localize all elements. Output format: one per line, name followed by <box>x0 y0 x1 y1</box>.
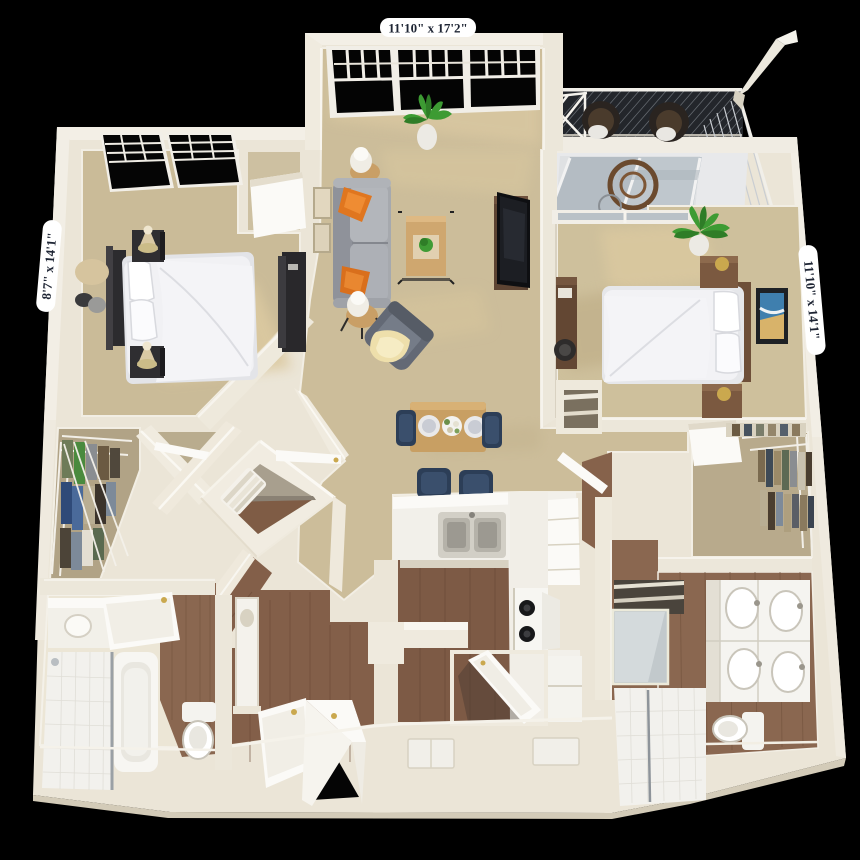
svg-text:11'10" x 17'2": 11'10" x 17'2" <box>388 21 467 36</box>
